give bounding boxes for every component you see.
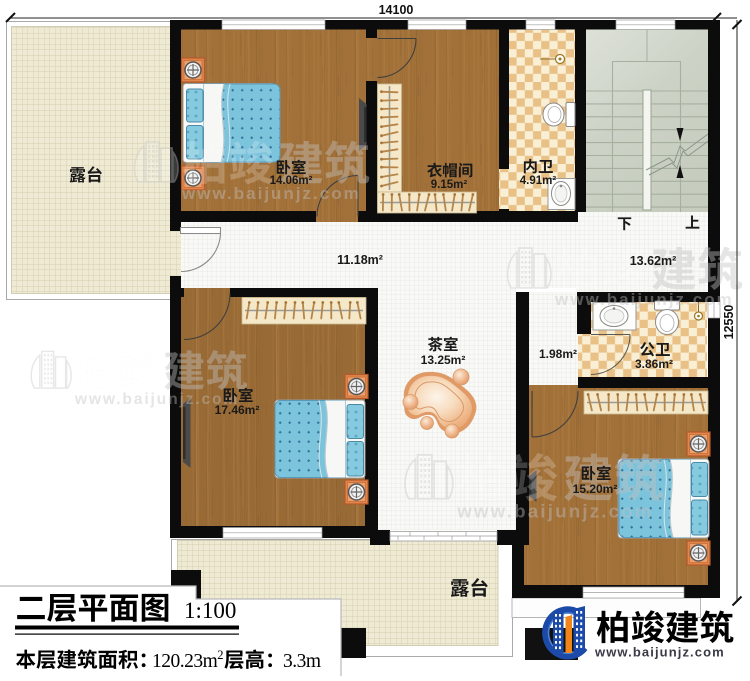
svg-text:14100: 14100 [379, 3, 414, 17]
svg-text:1:100: 1:100 [184, 598, 236, 623]
svg-text:13.25m²: 13.25m² [421, 353, 466, 367]
svg-text:3.3m: 3.3m [283, 651, 321, 672]
svg-text:9.15m²: 9.15m² [431, 179, 468, 191]
svg-text:12550: 12550 [722, 305, 736, 340]
svg-text:120.23m2: 120.23m2 [152, 648, 223, 672]
svg-text:www.baijunjz.com: www.baijunjz.com [594, 645, 725, 660]
svg-text:1.98m²: 1.98m² [539, 347, 577, 361]
svg-text:13.62m²: 13.62m² [630, 254, 677, 268]
svg-text:11.18m²: 11.18m² [337, 253, 383, 267]
svg-text:14.06m²: 14.06m² [270, 175, 313, 187]
svg-text:3.86m²: 3.86m² [635, 357, 673, 371]
svg-text:15.20m²: 15.20m² [573, 482, 618, 496]
svg-text:4.91m²: 4.91m² [520, 175, 557, 187]
svg-text:17.46m²: 17.46m² [215, 403, 260, 417]
